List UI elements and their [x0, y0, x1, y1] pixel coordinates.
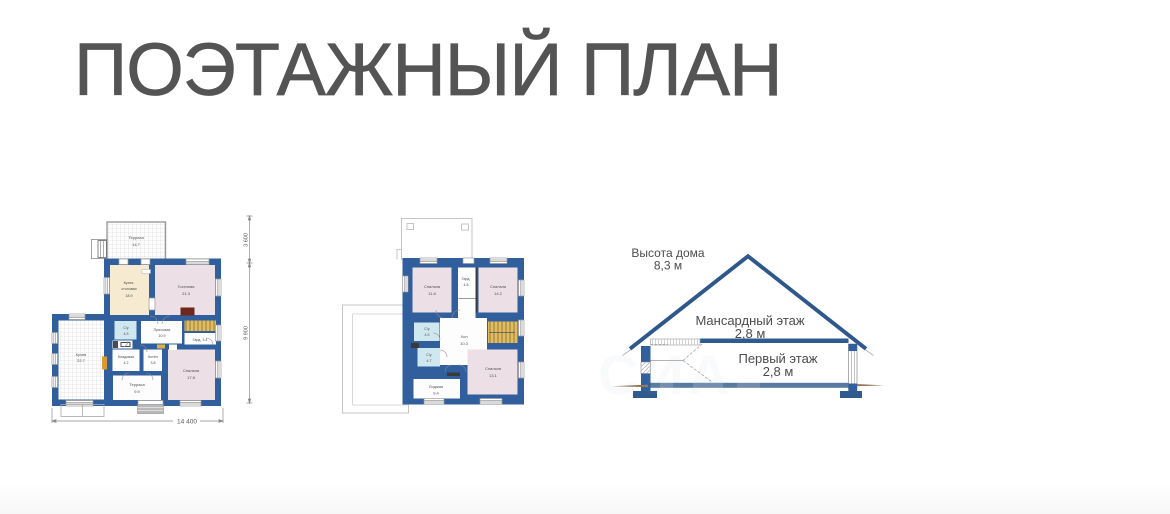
svg-text:4.5: 4.5	[425, 333, 430, 337]
svg-text:4.5: 4.5	[464, 283, 469, 287]
svg-text:14.2: 14.2	[494, 291, 503, 296]
svg-text:14.7: 14.7	[132, 242, 141, 247]
svg-text:Прихожая: Прихожая	[154, 328, 171, 332]
svg-text:14 400: 14 400	[177, 418, 197, 425]
svg-text:10.3: 10.3	[460, 341, 469, 346]
svg-text:Кухня: Кухня	[76, 352, 87, 357]
svg-text:Гостиная: Гостиная	[178, 284, 195, 289]
svg-text:СИА: СИА	[598, 343, 734, 406]
svg-text:3.8: 3.8	[151, 361, 156, 365]
svg-text:13.1: 13.1	[489, 373, 498, 378]
svg-text:8,3 м: 8,3 м	[654, 259, 682, 273]
svg-text:Спальня: Спальня	[424, 284, 440, 289]
svg-text:2,8 м: 2,8 м	[763, 364, 794, 379]
svg-text:Гард.: Гард.	[462, 277, 471, 281]
svg-text:Терраса: Терраса	[128, 235, 144, 240]
svg-text:9.9: 9.9	[134, 389, 140, 394]
svg-text:Хол: Хол	[460, 334, 468, 339]
svg-text:11.8: 11.8	[428, 291, 436, 296]
svg-text:18.9: 18.9	[126, 294, 133, 298]
svg-text:Кухня-: Кухня-	[124, 281, 136, 285]
svg-text:4.2: 4.2	[124, 361, 129, 365]
svg-text:10.9: 10.9	[159, 334, 166, 338]
svg-text:Гард. 3.4: Гард. 3.4	[193, 338, 208, 342]
svg-text:17.8: 17.8	[187, 375, 196, 380]
svg-text:С/у: С/у	[424, 327, 430, 331]
svg-text:Спальня: Спальня	[183, 368, 199, 373]
svg-text:Котёл: Котёл	[148, 355, 158, 359]
svg-text:4.7: 4.7	[427, 359, 432, 363]
svg-text:Спальня: Спальня	[490, 284, 506, 289]
svg-text:Кладовая: Кладовая	[118, 355, 134, 359]
svg-text:2,8 м: 2,8 м	[735, 326, 766, 341]
svg-text:9.4: 9.4	[433, 391, 439, 396]
svg-text:Терраса: Терраса	[129, 382, 145, 387]
svg-text:Спальня: Спальня	[485, 366, 501, 371]
svg-text:22.7: 22.7	[77, 358, 86, 363]
svg-text:9 900: 9 900	[244, 326, 250, 340]
svg-text:4.5: 4.5	[124, 332, 129, 336]
svg-text:С/у: С/у	[426, 353, 432, 357]
svg-text:столовая: столовая	[121, 287, 136, 291]
svg-text:3 600: 3 600	[244, 233, 250, 247]
svg-text:Лоджия: Лоджия	[429, 384, 443, 389]
svg-text:С/у: С/у	[123, 326, 129, 330]
svg-text:21.3: 21.3	[182, 291, 191, 296]
